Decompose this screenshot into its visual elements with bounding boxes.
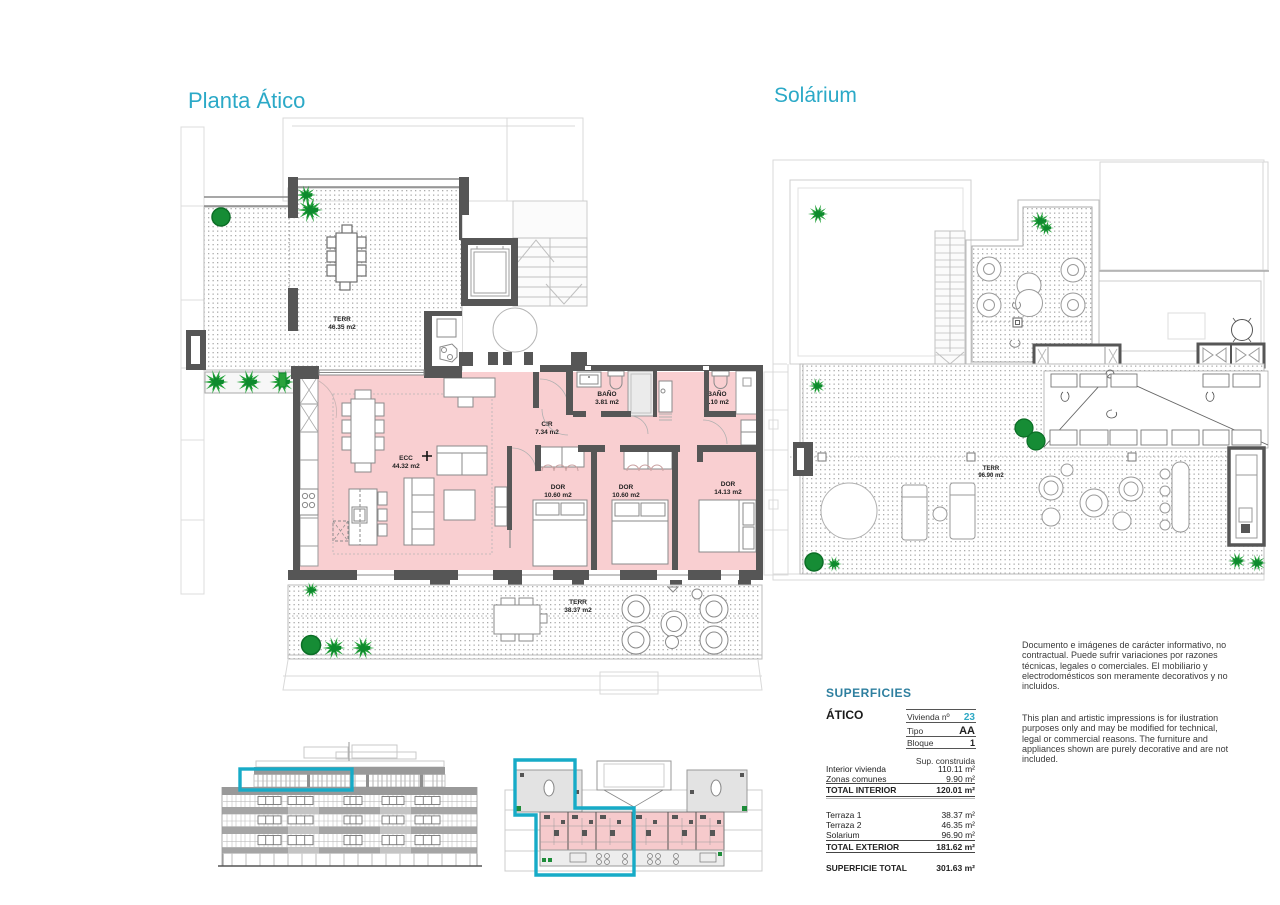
svg-text:ECC: ECC [399,455,413,462]
svg-text:10.60 m2: 10.60 m2 [544,492,572,499]
svg-text:TERR: TERR [983,466,1000,472]
svg-text:DOR: DOR [551,484,566,491]
svg-text:46.35 m2: 46.35 m2 [328,324,356,331]
svg-text:BAÑO: BAÑO [707,389,726,398]
svg-text:3.81 m2: 3.81 m2 [595,399,619,406]
svg-text:10.60 m2: 10.60 m2 [612,492,640,499]
svg-text:14.13 m2: 14.13 m2 [714,489,742,496]
svg-text:44.32 m2: 44.32 m2 [392,463,420,470]
svg-text:38.37 m2: 38.37 m2 [564,607,592,614]
svg-text:BAÑO: BAÑO [597,389,616,398]
svg-text:TERR: TERR [569,599,587,606]
svg-text:DOR: DOR [619,484,634,491]
svg-text:7.34 m2: 7.34 m2 [535,429,559,436]
svg-text:96.90 m2: 96.90 m2 [978,473,1004,479]
svg-text:TERR: TERR [333,316,351,323]
svg-text:DOR: DOR [721,481,736,488]
